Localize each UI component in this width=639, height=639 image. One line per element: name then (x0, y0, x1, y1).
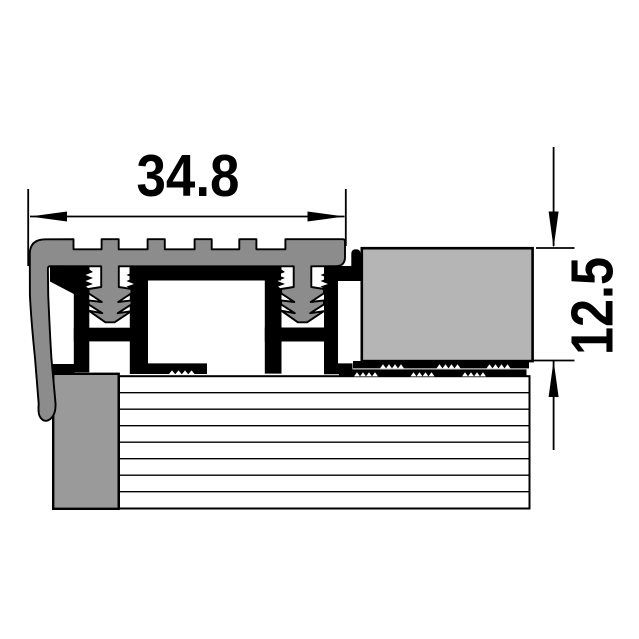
svg-text:34.8: 34.8 (137, 143, 240, 209)
svg-text:12.5: 12.5 (560, 257, 626, 355)
